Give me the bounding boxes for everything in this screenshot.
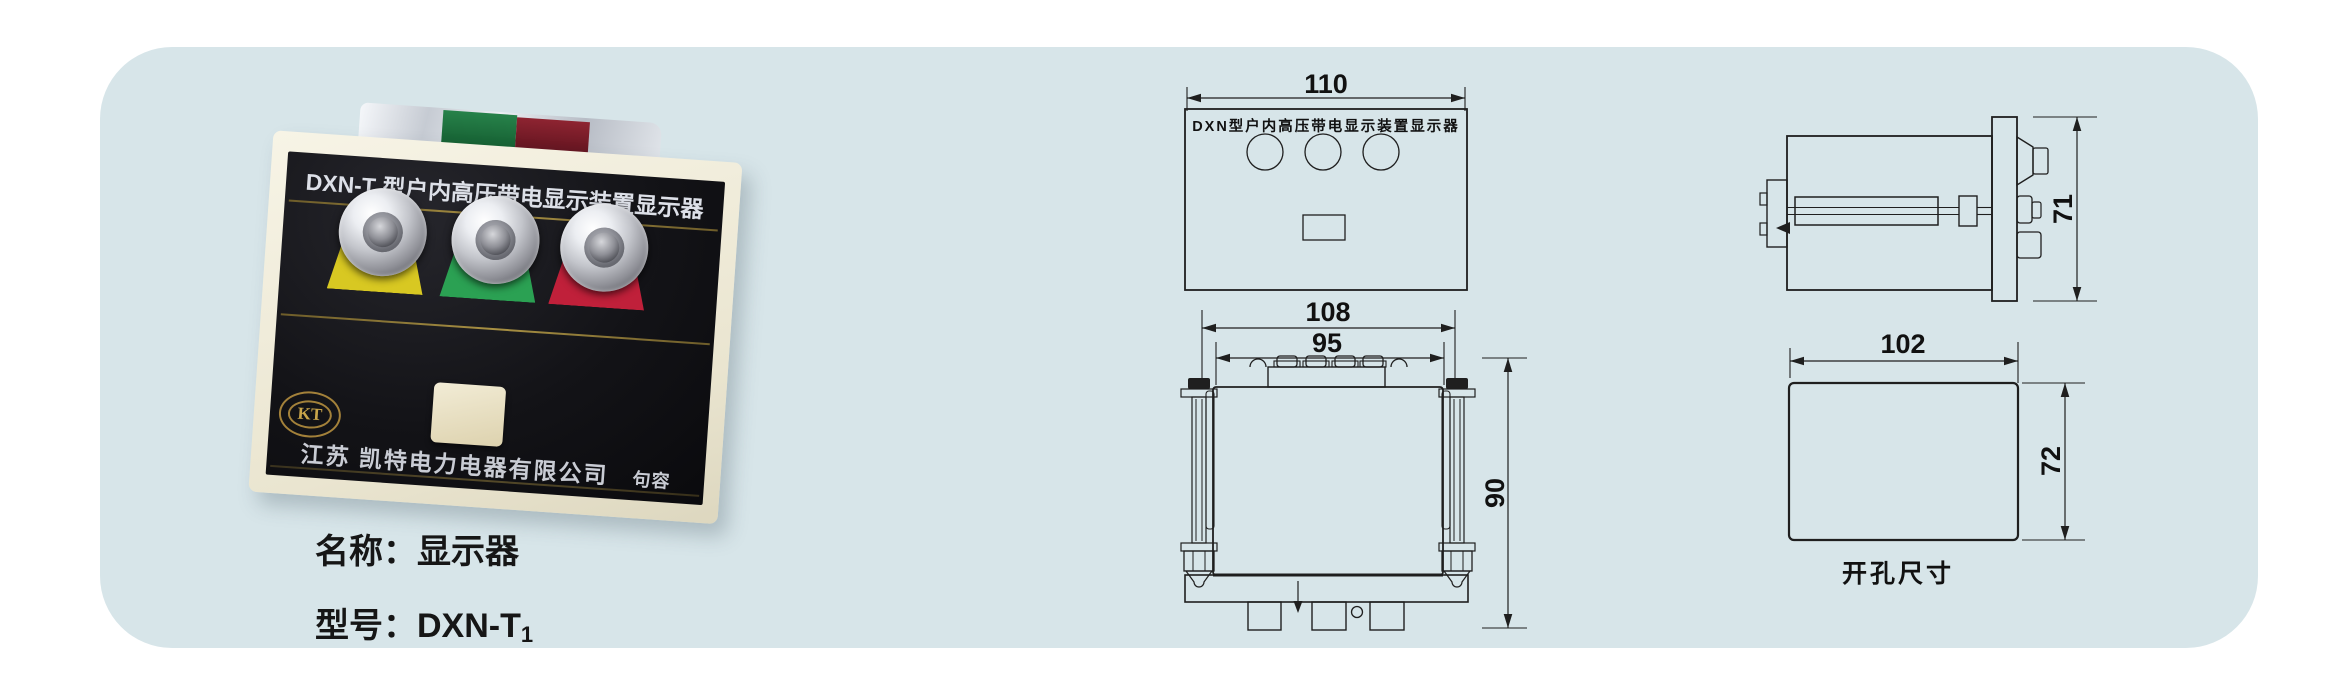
product-model-line: 型号：DXN-T1: [315, 598, 533, 647]
cutout-caption: 开孔尺寸: [1842, 560, 1954, 588]
device-front-panel: DXN-T 型户内高压带电显示装置显示器: [266, 151, 726, 505]
dim-110: 110: [1304, 69, 1348, 99]
cutout-view: 102 72 开孔尺寸: [1789, 329, 2085, 588]
front-view-title: DXN型户内高压带电显示装置显示器: [1192, 117, 1460, 135]
kt-logo: KT: [277, 389, 342, 439]
lamp-lens: [361, 211, 404, 254]
test-button: [430, 382, 506, 447]
model-value: DXN-T: [417, 607, 521, 645]
company-city: 句容: [632, 469, 671, 492]
model-subscript: 1: [521, 622, 533, 647]
model-label: 型号：: [315, 607, 417, 645]
caption-block: 名称：显示器 型号：DXN-T1: [315, 524, 533, 647]
lamp-lens: [583, 226, 626, 269]
lamp-lens: [474, 219, 517, 262]
kt-logo-text: KT: [287, 399, 333, 430]
product-photo: DXN-T 型户内高压带电显示装置显示器: [272, 95, 832, 555]
dim-108: 108: [1305, 297, 1350, 327]
page: DXN-T 型户内高压带电显示装置显示器: [0, 0, 2346, 675]
product-name-line: 名称：显示器: [315, 524, 533, 573]
front-and-rear-view-drawing: 110 DXN型户内高压带电显示装置显示器 108 95: [1140, 55, 1560, 660]
dim-72: 72: [2036, 446, 2066, 476]
indicator-lamps: [276, 181, 723, 351]
device: DXN-T 型户内高压带电显示装置显示器: [248, 92, 745, 524]
lamp-yellow-phase: [317, 184, 446, 322]
rear-view: 108 95: [1181, 297, 1527, 630]
dim-102: 102: [1880, 329, 1925, 359]
dim-95: 95: [1312, 328, 1342, 358]
front-view: 110 DXN型户内高压带电显示装置显示器: [1185, 69, 1467, 290]
device-bezel: DXN-T 型户内高压带电显示装置显示器: [248, 130, 742, 524]
name-label: 名称：: [315, 533, 417, 571]
lamp-red-phase: [538, 200, 667, 338]
side-and-cutout-drawing: 71 102 72 开孔尺寸: [1750, 90, 2130, 600]
company-name: 江苏 凯特电力电器有限公司: [300, 441, 609, 488]
dim-71: 71: [2048, 194, 2078, 224]
name-value: 显示器: [417, 533, 519, 571]
side-view: 71: [1760, 117, 2097, 301]
dim-90: 90: [1480, 478, 1510, 508]
